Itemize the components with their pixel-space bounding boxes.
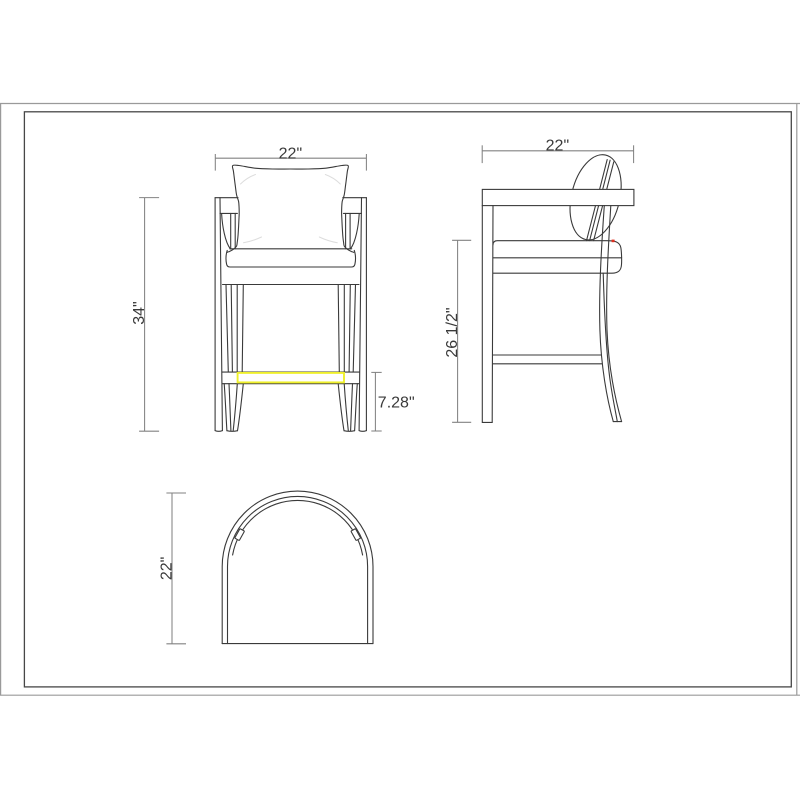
svg-text:34": 34"	[131, 301, 148, 324]
svg-text:22": 22"	[279, 145, 302, 162]
svg-text:26 1/2": 26 1/2"	[444, 307, 461, 357]
svg-text:22": 22"	[546, 138, 569, 155]
svg-text:22": 22"	[159, 557, 176, 580]
svg-text:7.28": 7.28"	[378, 394, 415, 411]
